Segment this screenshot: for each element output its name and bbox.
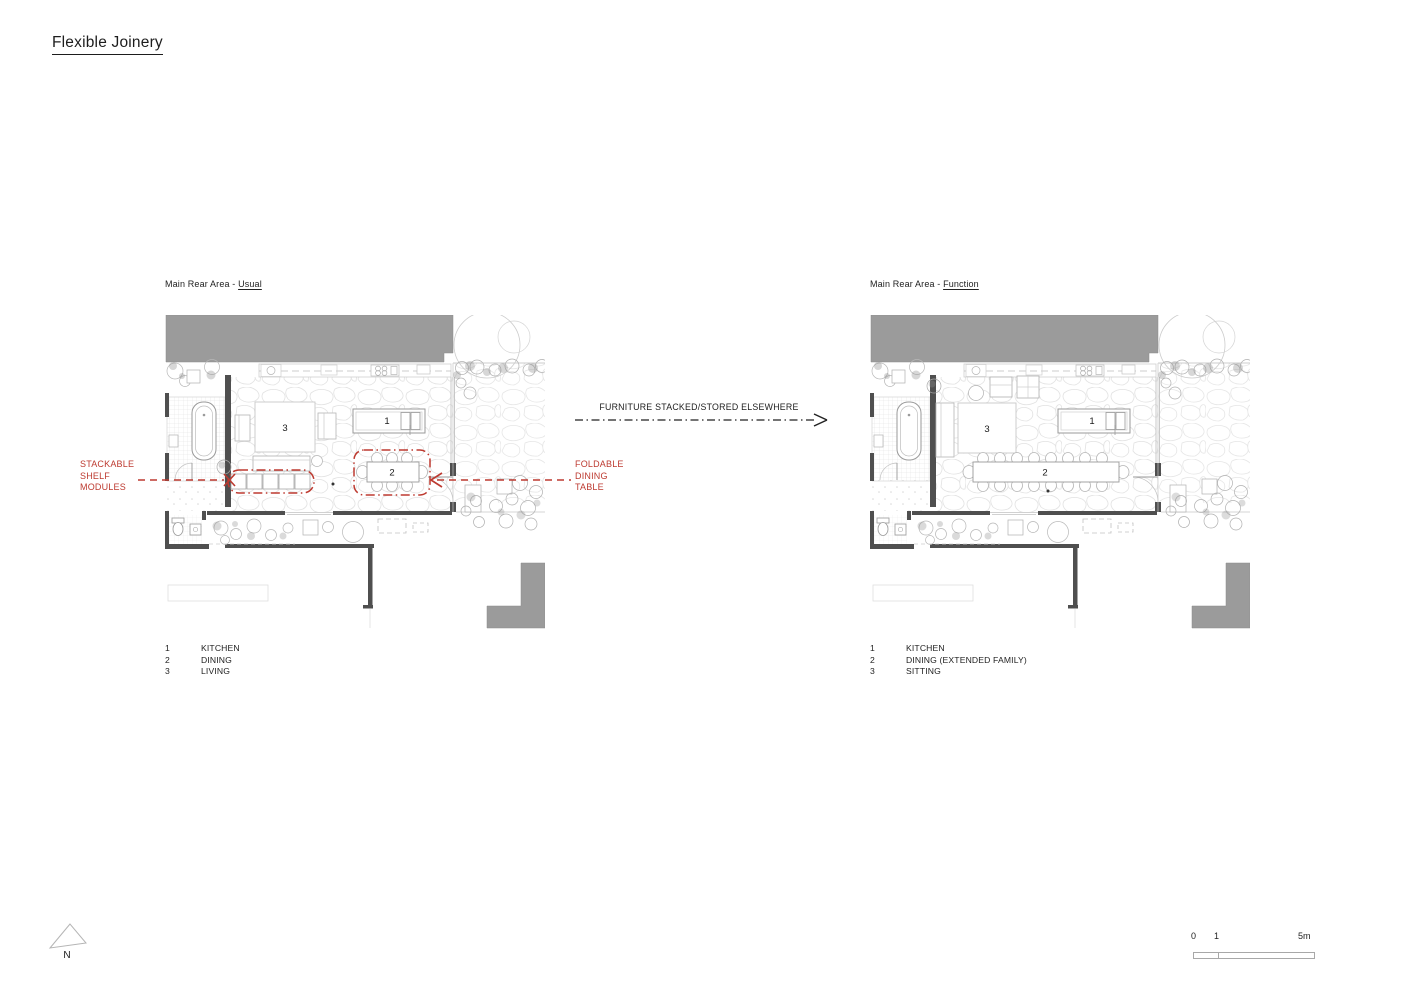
legend-row: 3 LIVING [165, 666, 240, 678]
scale-tick-start: 0 [1191, 931, 1196, 941]
plan-label-usual: Main Rear Area - Usual [165, 279, 262, 289]
page-title: Flexible Joinery [52, 34, 163, 55]
legend-row: 2 DINING (EXTENDED FAMILY) [870, 655, 1027, 667]
kitchen-island: 1 [1058, 409, 1130, 435]
leader-arrow-shelf [138, 471, 238, 489]
annotation-foldable-table: FOLDABLE DINING TABLE [575, 459, 655, 494]
legend-row: 1 KITCHEN [165, 643, 240, 655]
legend-row: 2 DINING [165, 655, 240, 667]
drawing-sheet: { "title": "Flexible Joinery", "plans": … [0, 0, 1414, 1000]
scale-bar-ruler [1193, 952, 1315, 959]
transition-arrow-icon [573, 411, 829, 429]
room-number-sitting: 3 [984, 424, 989, 435]
room-number-dining: 2 [1042, 468, 1047, 479]
dining-table-long: 2 [963, 453, 1129, 493]
plan-label-function: Main Rear Area - Function [870, 279, 979, 289]
room-number-kitchen: 1 [1089, 416, 1094, 427]
scale-bar-tick [1218, 953, 1219, 958]
floor-plan-function: 3 1 2 [870, 315, 1250, 630]
legend-usual: 1 KITCHEN 2 DINING 3 LIVING [165, 643, 240, 678]
scale-tick-end: 5m [1298, 931, 1311, 941]
scale-bar: 0 1 5m [1185, 931, 1325, 965]
kitchen-island: 1 [353, 409, 425, 435]
room-number-dining: 2 [389, 468, 394, 479]
legend-row: 1 KITCHEN [870, 643, 1027, 655]
room-number-kitchen: 1 [384, 416, 389, 427]
legend-function: 1 KITCHEN 2 DINING (EXTENDED FAMILY) 3 S… [870, 643, 1027, 678]
north-arrow-icon: N [40, 918, 96, 962]
north-label: N [63, 950, 70, 961]
leader-arrow-table [429, 471, 571, 489]
room-number-living: 3 [282, 423, 287, 434]
scale-tick-one: 1 [1214, 931, 1219, 941]
legend-row: 3 SITTING [870, 666, 1027, 678]
